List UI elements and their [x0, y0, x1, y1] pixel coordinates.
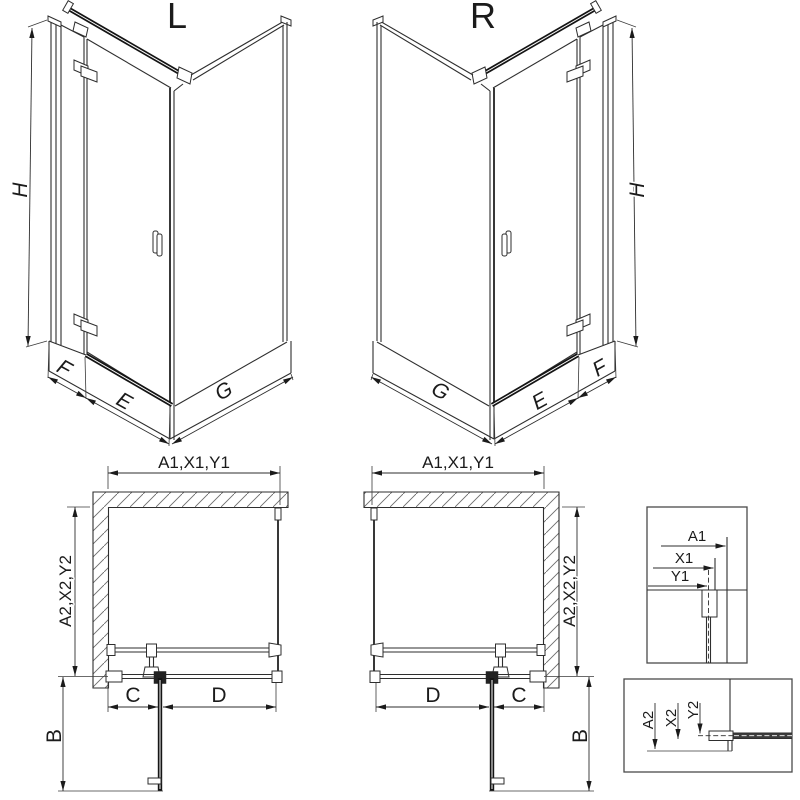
plan-view-left: A1,X1,Y1 A2,X2,Y2 C D B	[43, 453, 288, 791]
detail-dim-label-a1: A1	[688, 528, 706, 545]
dim-label-width-right: A1,X1,Y1	[422, 453, 494, 472]
dim-label-d-right: D	[425, 684, 440, 707]
dim-label-depth-left: A2,X2,Y2	[56, 555, 75, 627]
view-title-right: R	[470, 0, 496, 36]
dim-label-b-right: B	[569, 729, 592, 743]
view-title-left: L	[167, 0, 187, 36]
dim-label-depth-right: A2,X2,Y2	[560, 555, 579, 627]
detail-dim-label-x2: X2	[663, 709, 680, 727]
detail-dim-label-y2: Y2	[685, 701, 702, 719]
dim-label-height-right: H	[626, 182, 649, 198]
shower-enclosure-drawing: L H F E G R H F E G A1,X1,Y1 A2,X2,Y2 C …	[0, 0, 800, 800]
dim-label-side-right: F	[589, 355, 612, 382]
detail-dim-label-x1: X1	[675, 550, 693, 567]
dim-label-return-right: G	[427, 377, 452, 405]
dim-label-side-left: F	[53, 355, 76, 382]
dim-label-c-right: C	[511, 684, 526, 707]
wall-hatched-left	[93, 492, 288, 688]
iso-view-left: L H F E G	[9, 0, 293, 446]
detail-dim-label-y1: Y1	[671, 568, 689, 585]
wall-hatched-right	[364, 492, 559, 688]
detail-view-wall-profile: A1 X1 Y1	[647, 507, 747, 663]
dim-label-door-right: E	[528, 387, 552, 414]
dim-label-width-left: A1,X1,Y1	[158, 453, 230, 472]
dim-label-height-left: H	[9, 182, 32, 198]
dim-label-d-left: D	[211, 684, 226, 707]
dim-label-c-left: C	[125, 684, 140, 707]
technical-drawing-sheet: L H F E G R H F E G A1,X1,Y1 A2,X2,Y2 C …	[0, 0, 800, 800]
detail-dim-label-a2: A2	[640, 711, 657, 729]
dim-label-b-left: B	[43, 729, 66, 743]
iso-view-right: R H F E G	[371, 0, 649, 446]
dim-label-return-left: G	[211, 377, 236, 405]
plan-view-right: A1,X1,Y1 A2,X2,Y2 D C B	[364, 453, 594, 791]
detail-view-floor-profile: A2 X2 Y2	[624, 679, 792, 772]
dim-label-door-left: E	[112, 388, 136, 415]
